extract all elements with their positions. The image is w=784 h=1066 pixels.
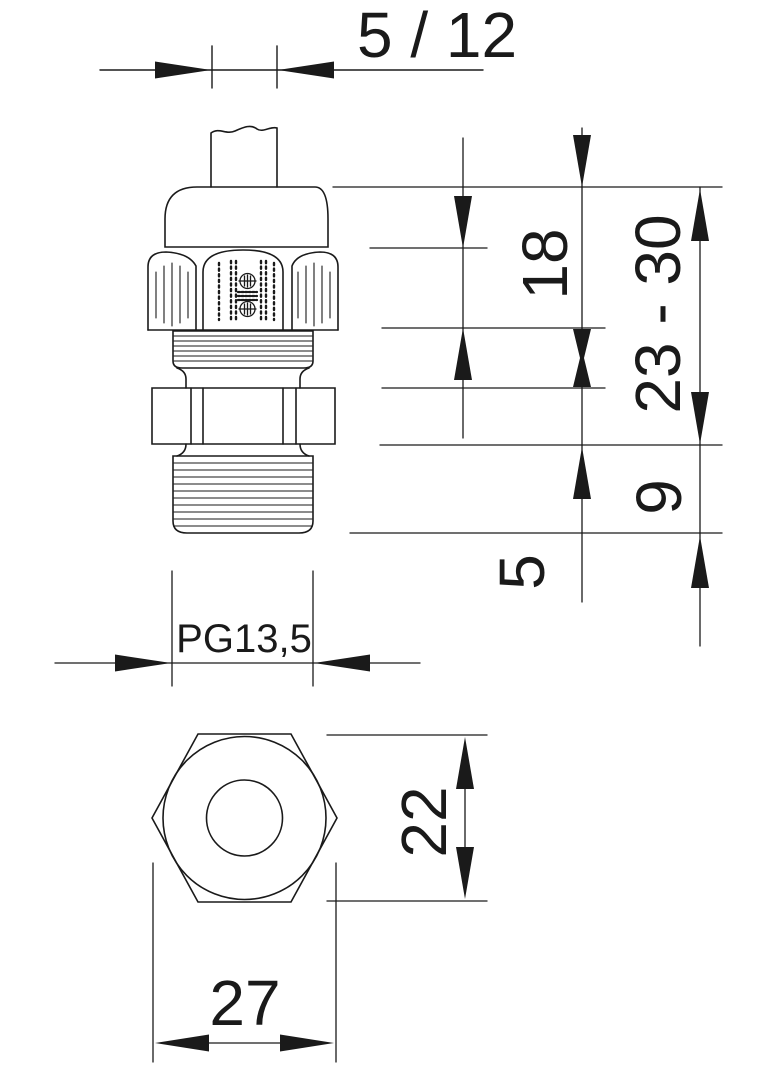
arrow-down-icon [573,135,591,187]
hex-cap [148,250,338,330]
arrow-left-icon [314,655,370,672]
arrow-left-icon [278,62,334,79]
dome-cap [165,187,328,247]
arrow-up-icon [573,447,591,499]
dim-overall-height-label: 23 - 30 [622,214,694,413]
middle-hex-body [152,388,335,444]
hex-outline [152,734,337,902]
upper-thread-ring [173,331,313,368]
cable-stub [211,126,277,187]
dim-clamp-range: 5 / 12 [100,0,517,88]
dim-thread-size: PG13,5 [55,571,420,686]
arrow-left-icon [155,1035,209,1052]
side-view [148,126,338,533]
threaded-stem [173,456,313,533]
arrow-up-icon [456,737,474,789]
dim-across-corners: 27 [153,863,336,1062]
technical-drawing: 5 / 12 18 5 23 - 30 9 PG13,5 [0,0,784,1066]
brand-emblem [238,274,257,317]
bottom-view [152,734,337,902]
dim-overall-height: 23 - 30 9 [622,187,709,646]
arrow-down-icon [454,196,472,248]
dim-across-flats: 22 [327,735,487,901]
dim-thread-length-label: 9 [623,479,695,515]
dim-clamp-range-label: 5 / 12 [357,0,517,71]
dim-across-corners-label: 27 [209,967,280,1039]
knurl-left [156,263,188,326]
arrow-right-icon [280,1035,334,1052]
arrow-right-icon [155,62,211,79]
knurl-right [298,263,330,326]
dim-chain-line: 5 [486,128,591,602]
dim-travel-label: 5 [486,554,558,590]
cable-hole-circle [207,780,283,856]
arrow-up-icon [691,536,709,588]
pinched-arrow-icon [573,329,591,387]
drawing-canvas: 5 / 12 18 5 23 - 30 9 PG13,5 [0,0,784,1066]
dim-cap-height: 18 [454,138,581,438]
dim-cap-height-label: 18 [509,228,581,299]
dim-across-flats-label: 22 [388,786,460,857]
body-circle [163,737,326,900]
neck-groove [177,368,309,388]
dim-thread-size-label: PG13,5 [176,617,312,661]
lower-neck [177,444,309,456]
arrow-up-icon [454,328,472,380]
arrow-right-icon [115,655,171,672]
